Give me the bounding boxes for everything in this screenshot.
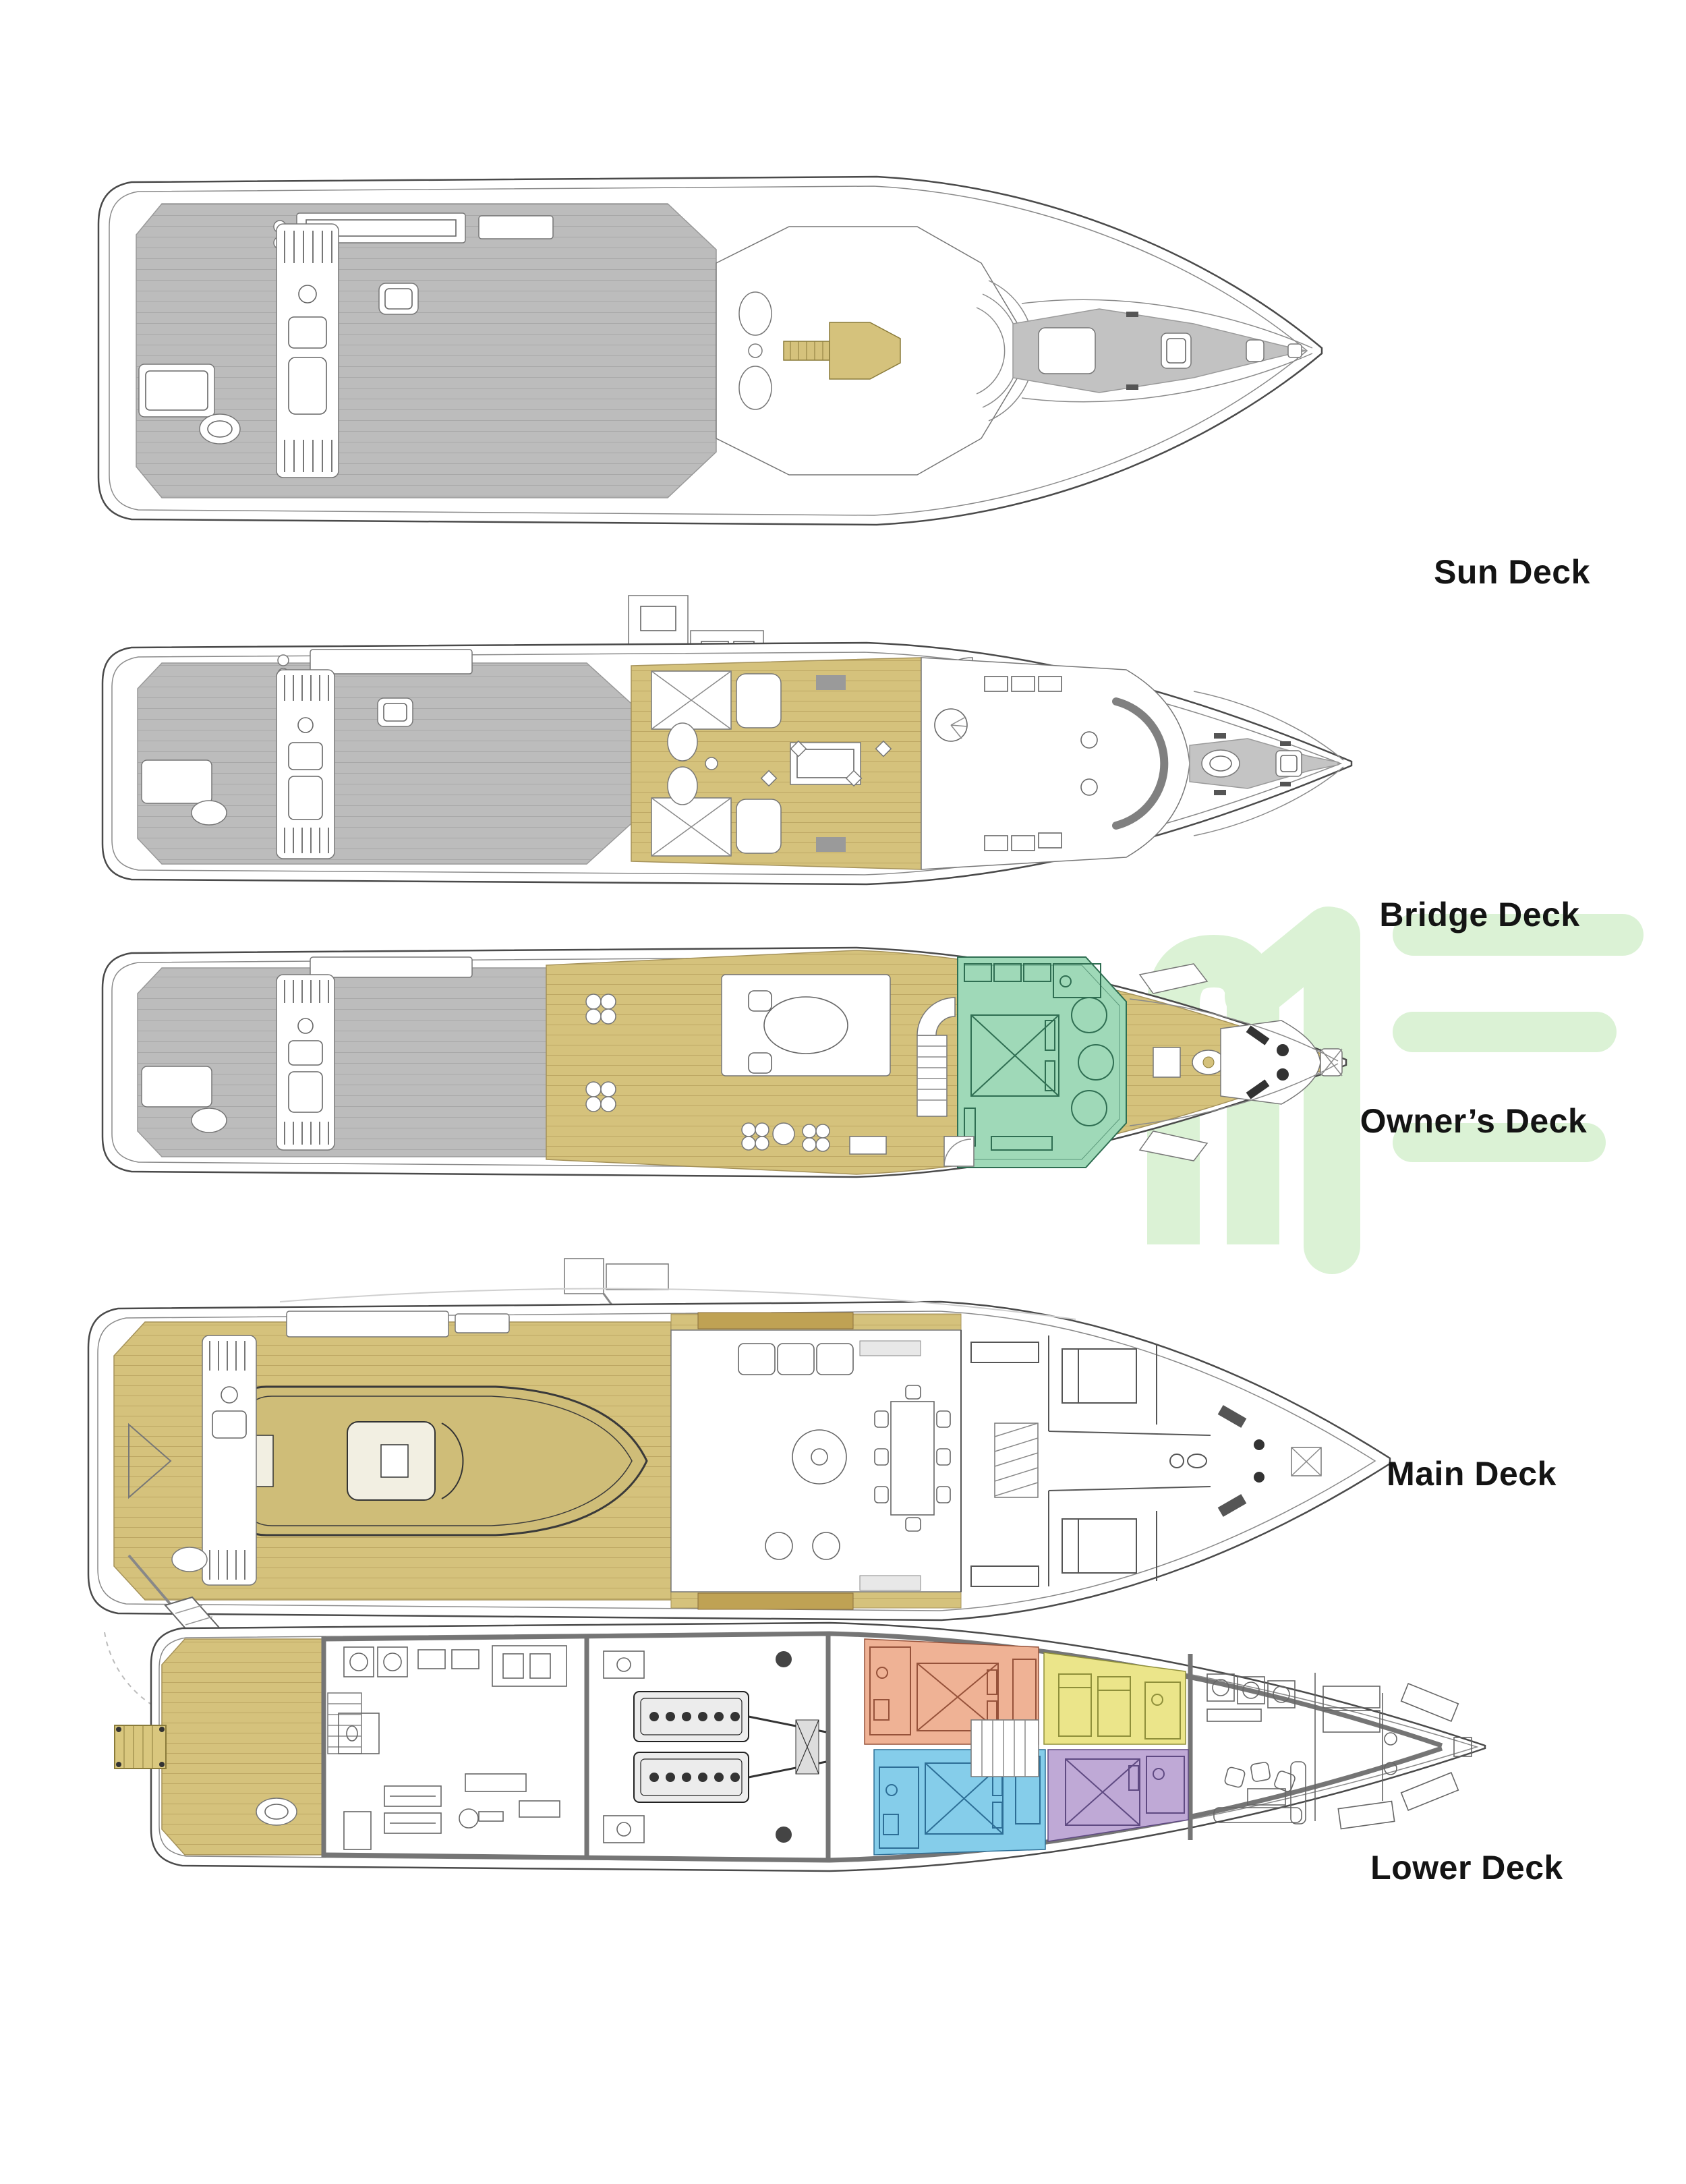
wheelhouse <box>921 658 1190 869</box>
indoor-outdoor-dining <box>671 1330 961 1592</box>
exterior-lounge <box>631 658 921 869</box>
lower-deck-plan <box>101 1612 1504 1882</box>
stair-hatch <box>995 1423 1038 1497</box>
bridge-deck-plan <box>74 590 1369 890</box>
tender <box>221 1387 647 1535</box>
owners-deck-plan <box>74 934 1356 1258</box>
deck-label-sun: Sun Deck <box>1434 552 1590 592</box>
sun-deck-plan <box>74 162 1342 560</box>
owners-stateroom <box>958 957 1126 1168</box>
deck-label-bridge: Bridge Deck <box>1379 895 1579 934</box>
aft-teak-deck <box>136 204 716 498</box>
deck-label-owners: Owner’s Deck <box>1360 1101 1588 1141</box>
central-stairs <box>971 1720 1039 1777</box>
deck-label-main: Main Deck <box>1387 1454 1557 1493</box>
deck-plan-page: Sun Deck <box>0 0 1686 2184</box>
deck-label-lower: Lower Deck <box>1370 1848 1563 1887</box>
